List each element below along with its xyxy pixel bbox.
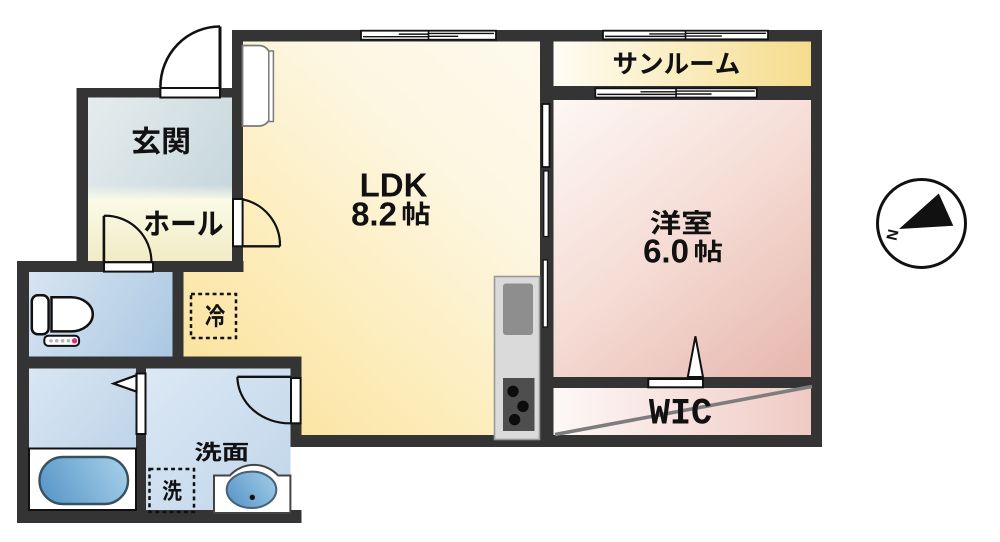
svg-text:WIC: WIC [649, 393, 712, 435]
svg-text:6.0: 6.0 [643, 232, 689, 269]
svg-text:8.2: 8.2 [351, 195, 397, 232]
